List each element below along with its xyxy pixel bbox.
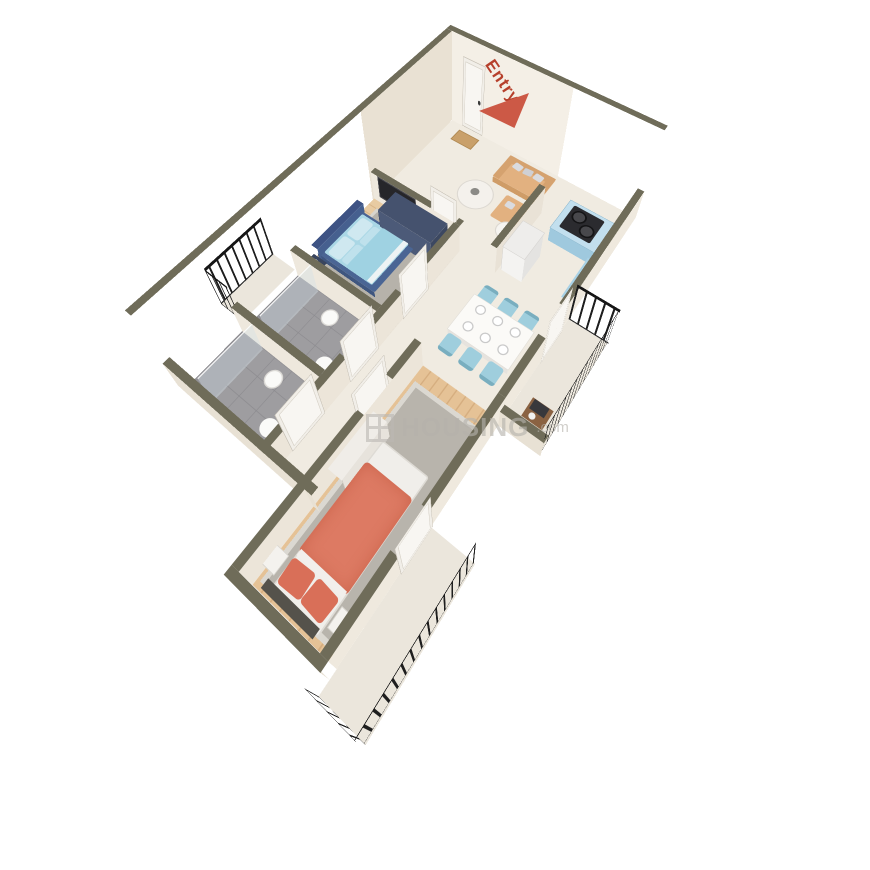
bathroom-window [222, 199, 288, 297]
round-mirror [322, 134, 353, 198]
watermark: HOUSING .com [366, 412, 569, 443]
door-handle-icon [478, 100, 481, 106]
shower-head-icon [209, 245, 222, 268]
kitchen-window [589, 109, 649, 192]
watermark-name: HOUSING [401, 412, 529, 443]
floorplan-render: Entry HOUSING .com [0, 0, 870, 870]
bathroom-window [153, 255, 234, 356]
watermark-logo-icon [366, 414, 394, 442]
watermark-tld: .com [536, 419, 569, 436]
